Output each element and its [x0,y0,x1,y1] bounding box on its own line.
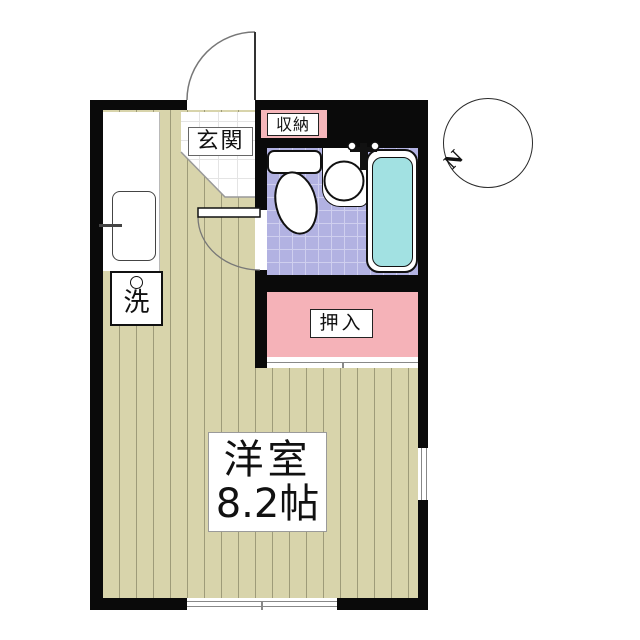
laundry-label: 洗 [123,290,149,316]
washing-machine-icon: 洗 [110,271,163,326]
entrance-door-opening [187,100,255,110]
room-name: 洋室 [224,439,312,481]
entrance-label: 玄関 [188,127,253,156]
main-room-label: 洋室 8.2帖 [208,432,327,532]
bathroom-door-opening [255,210,267,270]
door-swing-arc-icon [187,32,255,100]
window-icon [187,598,337,610]
sink-counter-icon [322,148,368,207]
storage-label: 収納 [267,113,319,136]
toilet-tank-icon [267,150,322,174]
closet-label: 押入 [310,309,373,338]
closet-sliding-door-icon [267,357,418,368]
sliding-door-tick [342,362,344,368]
window-icon [418,448,430,500]
floorplan: 洗 玄関 収納 押入 洋室 8.2帖 N [0,0,640,640]
room-size: 8.2帖 [216,483,320,525]
bathtub-water [372,157,413,267]
kitchen-faucet-icon [99,224,122,227]
